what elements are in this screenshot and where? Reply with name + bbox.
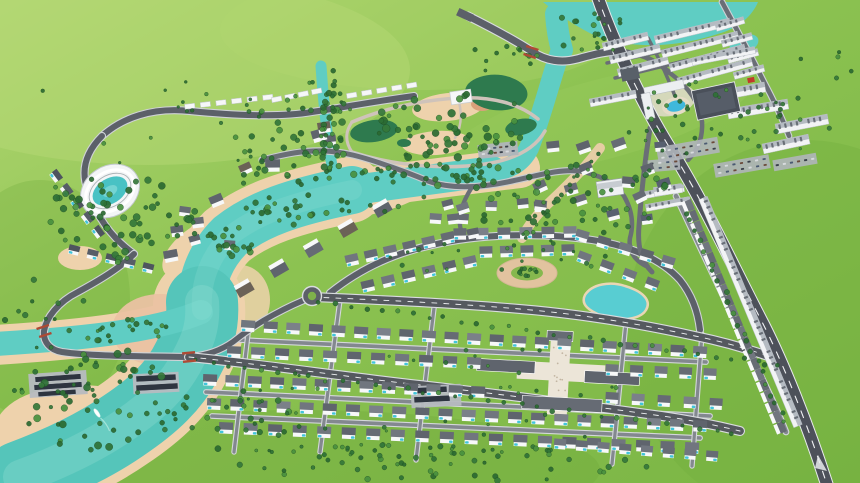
- masterplan-aerial-render: [0, 0, 860, 483]
- masterplan-svg: [0, 0, 860, 483]
- roundabout-island: [308, 292, 316, 300]
- park-pond-4: [397, 139, 411, 147]
